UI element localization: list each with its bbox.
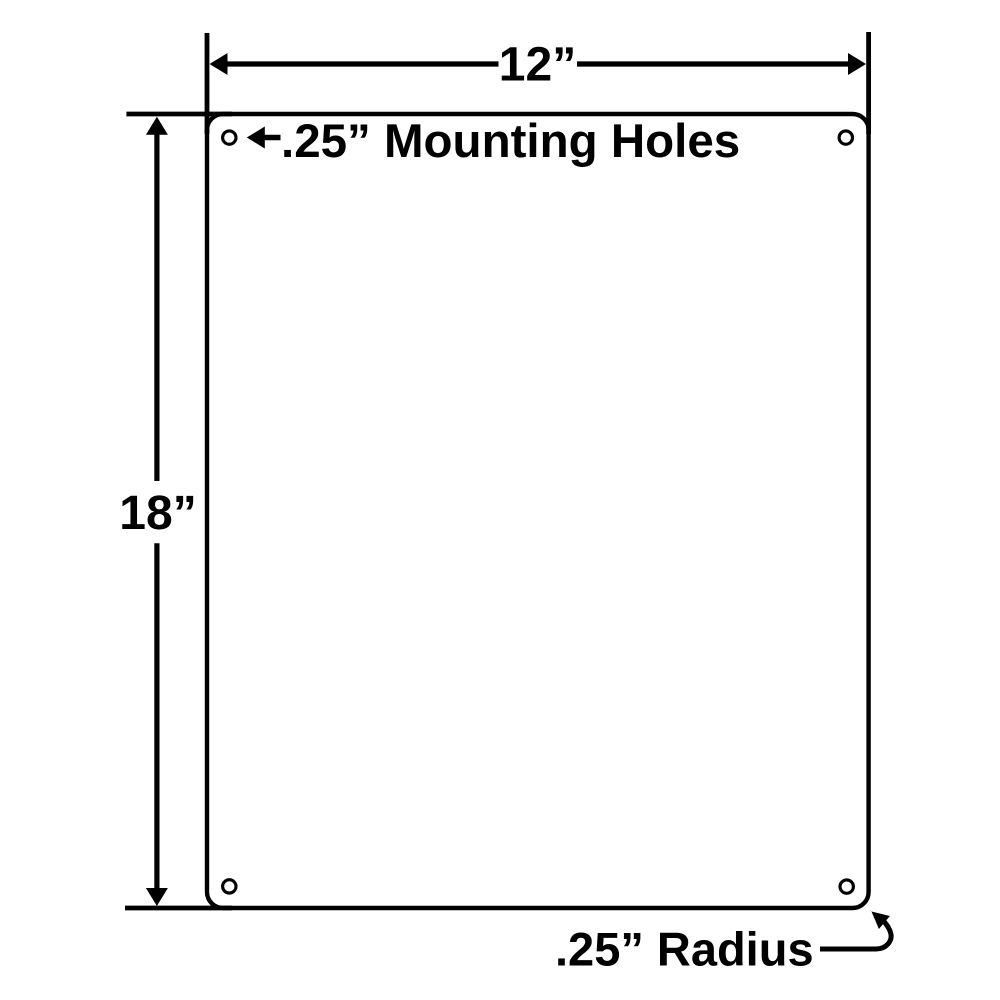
svg-text:12”: 12” bbox=[499, 39, 576, 92]
svg-text:.25” Mounting Holes: .25” Mounting Holes bbox=[281, 115, 740, 168]
svg-text:18”: 18” bbox=[119, 487, 196, 540]
svg-text:.25” Radius: .25” Radius bbox=[555, 923, 814, 976]
